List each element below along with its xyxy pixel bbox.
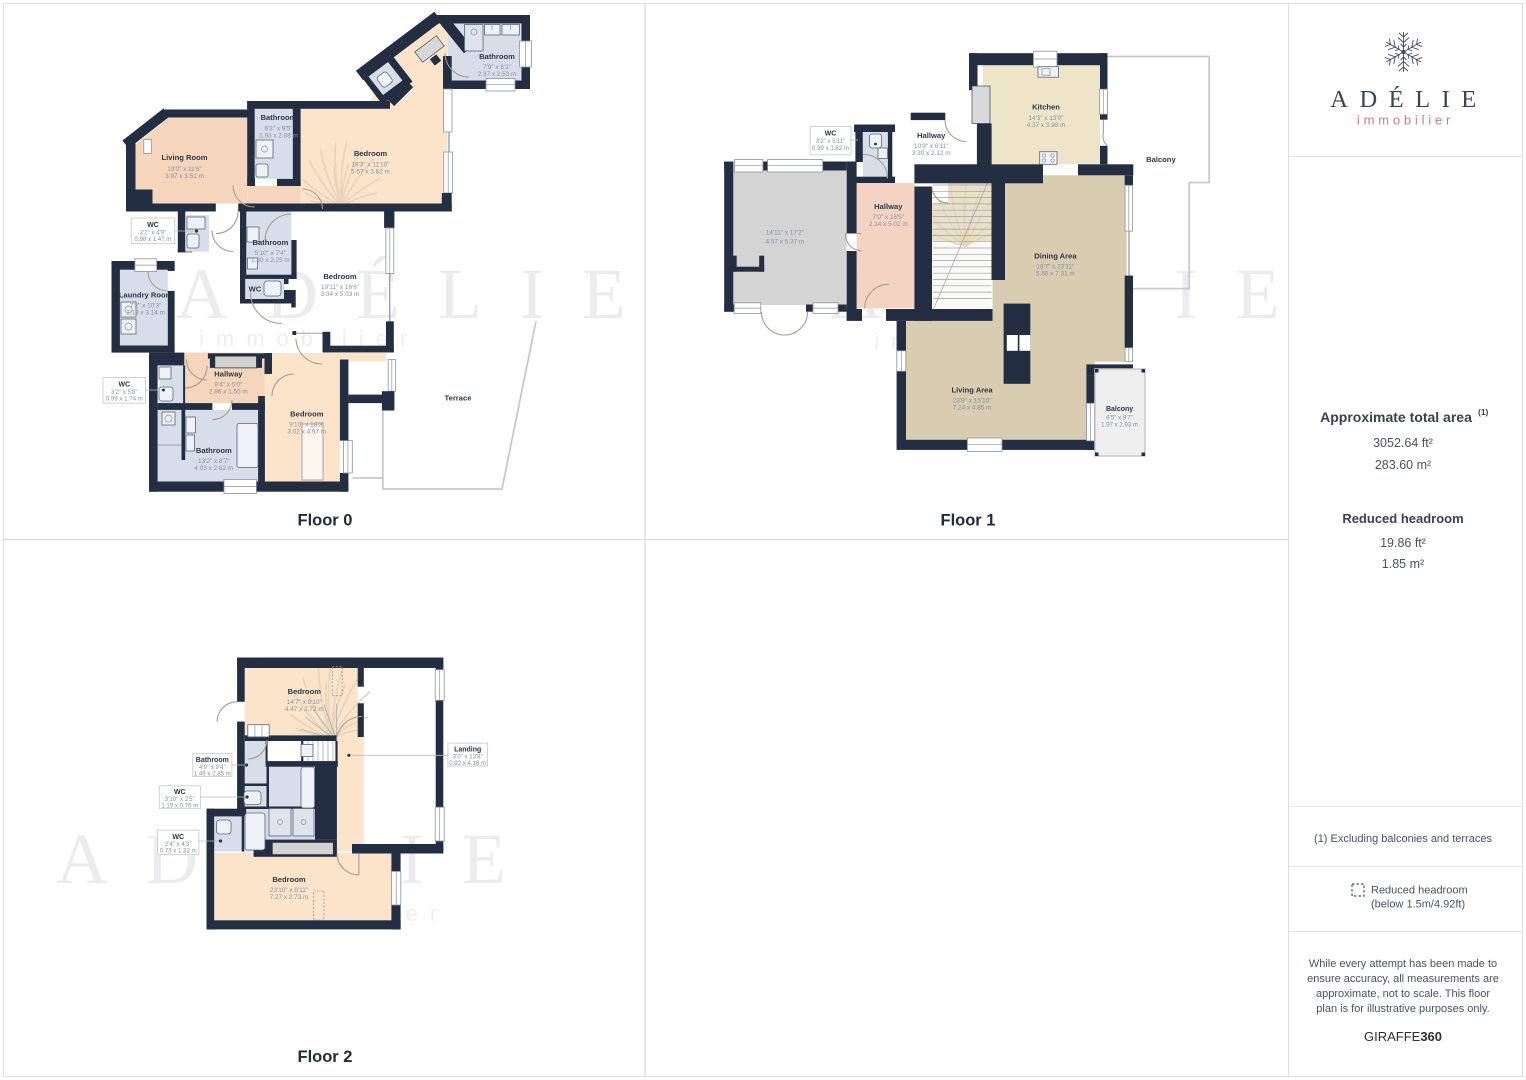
svg-text:Reduced headroom: Reduced headroom <box>1371 885 1468 897</box>
svg-text:Hallway: Hallway <box>214 370 243 379</box>
svg-text:WC: WC <box>147 222 159 229</box>
svg-text:2.19 x 3.14 m: 2.19 x 3.14 m <box>126 310 165 317</box>
svg-text:Bedroom: Bedroom <box>272 875 306 884</box>
svg-text:WC: WC <box>174 789 186 796</box>
svg-text:283.60 m²: 283.60 m² <box>1375 458 1431 472</box>
svg-text:Bedroom: Bedroom <box>323 272 357 281</box>
svg-text:Floor 0: Floor 0 <box>297 512 352 530</box>
svg-text:0.99 x 1.82 m: 0.99 x 1.82 m <box>812 145 849 152</box>
svg-text:WC: WC <box>825 131 837 138</box>
svg-text:3.97 x 3.51 m: 3.97 x 3.51 m <box>165 173 204 180</box>
svg-text:ADÉLIE: ADÉLIE <box>1330 85 1487 113</box>
svg-text:Reduced headroom: Reduced headroom <box>1342 511 1463 526</box>
svg-text:immobilier: immobilier <box>1357 113 1454 128</box>
svg-text:1.85 m²: 1.85 m² <box>1382 557 1424 571</box>
svg-text:Landing: Landing <box>454 746 481 753</box>
svg-text:0.99 x 1.74 m: 0.99 x 1.74 m <box>106 396 143 403</box>
svg-text:14'7" x 8'10": 14'7" x 8'10" <box>287 699 322 706</box>
svg-text:1.93 x 2.88 m: 1.93 x 2.88 m <box>259 133 298 140</box>
svg-text:3052.64 ft²: 3052.64 ft² <box>1373 436 1433 450</box>
svg-text:WC: WC <box>118 382 130 389</box>
svg-text:4.03 x 2.62 m: 4.03 x 2.62 m <box>194 465 233 472</box>
svg-text:Bathroom: Bathroom <box>252 238 288 247</box>
svg-text:4.57 x 5.37 m: 4.57 x 5.37 m <box>766 239 805 246</box>
svg-text:1.46 x 2.85 m: 1.46 x 2.85 m <box>194 771 231 778</box>
svg-text:Bedroom: Bedroom <box>354 149 388 158</box>
svg-text:Balcony: Balcony <box>1146 155 1176 164</box>
svg-text:3.30 x 2.12 m: 3.30 x 2.12 m <box>912 150 951 157</box>
svg-text:13'2" x 8'7": 13'2" x 8'7" <box>198 458 230 465</box>
svg-text:(below 1.5m/4.92ft): (below 1.5m/4.92ft) <box>1371 899 1465 911</box>
svg-text:3.34 x 5.03 m: 3.34 x 5.03 m <box>321 291 360 298</box>
svg-text:Terrace: Terrace <box>445 394 472 403</box>
svg-text:3.02 x 4.97 m: 3.02 x 4.97 m <box>287 429 326 436</box>
svg-text:ensure accuracy, all measureme: ensure accuracy, all measurements are <box>1307 973 1499 985</box>
svg-text:Balcony: Balcony <box>1106 406 1133 413</box>
svg-text:Laundry Room: Laundry Room <box>119 291 173 300</box>
svg-text:While every attempt has been m: While every attempt has been made to <box>1309 958 1497 970</box>
svg-text:Bedroom: Bedroom <box>290 410 324 419</box>
svg-text:3'2" x 5'11": 3'2" x 5'11" <box>816 138 846 145</box>
svg-text:Dining Area: Dining Area <box>1034 252 1077 261</box>
svg-text:Bathroom: Bathroom <box>196 757 229 764</box>
svg-text:5.68 x 7.31 m: 5.68 x 7.31 m <box>1036 271 1075 278</box>
svg-text:Hallway: Hallway <box>917 131 946 140</box>
svg-text:5'10" x 7'4": 5'10" x 7'4" <box>255 250 287 257</box>
svg-text:Floor 2: Floor 2 <box>297 1048 352 1066</box>
svg-text:Bedroom: Bedroom <box>288 687 322 696</box>
svg-text:14'11" x 17'2": 14'11" x 17'2" <box>766 230 804 237</box>
svg-text:(1) Excluding balconies and te: (1) Excluding balconies and terraces <box>1314 833 1492 845</box>
svg-text:WC: WC <box>172 834 184 841</box>
svg-text:0.98 x 1.47 m: 0.98 x 1.47 m <box>134 236 171 243</box>
svg-text:23'10" x 8'11": 23'10" x 8'11" <box>270 887 308 894</box>
svg-text:1.19 x 0.76 m: 1.19 x 0.76 m <box>161 803 198 810</box>
svg-text:10'9" x 6'11": 10'9" x 6'11" <box>914 143 949 150</box>
svg-text:7'0" x 16'5": 7'0" x 16'5" <box>873 214 905 221</box>
svg-text:19.86 ft²: 19.86 ft² <box>1380 536 1426 550</box>
svg-text:1.80 x 2.25 m: 1.80 x 2.25 m <box>251 257 290 264</box>
svg-text:5.57 x 3.62 m: 5.57 x 3.62 m <box>351 169 390 176</box>
svg-text:0.92 x 4.18 m: 0.92 x 4.18 m <box>449 760 486 767</box>
svg-text:9'10" x 16'3": 9'10" x 16'3" <box>289 422 324 429</box>
svg-text:6'5" x 9'7": 6'5" x 9'7" <box>1106 415 1133 422</box>
svg-text:14'3" x 13'0": 14'3" x 13'0" <box>1028 115 1063 122</box>
svg-text:WC: WC <box>249 285 262 294</box>
svg-text:2.86 x 1.55 m: 2.86 x 1.55 m <box>209 389 248 396</box>
svg-text:plan is for illustrative purpo: plan is for illustrative purposes only. <box>1316 1003 1489 1015</box>
svg-text:7'9" x 8'3": 7'9" x 8'3" <box>483 64 511 71</box>
svg-text:18'7" x 23'11": 18'7" x 23'11" <box>1036 264 1074 271</box>
svg-text:9'4" x 5'0": 9'4" x 5'0" <box>214 382 242 389</box>
svg-text:7.27 x 2.73 m: 7.27 x 2.73 m <box>270 894 309 901</box>
svg-text:23'8" x 15'10": 23'8" x 15'10" <box>953 398 992 405</box>
svg-text:Approximate total area: Approximate total area <box>1320 409 1472 425</box>
svg-text:6'3" x 9'5": 6'3" x 9'5" <box>265 126 293 133</box>
svg-text:1.97 x 2.93 m: 1.97 x 2.93 m <box>1101 422 1138 429</box>
svg-text:Living Room: Living Room <box>162 153 208 162</box>
svg-text:13'0" x 11'6": 13'0" x 11'6" <box>167 166 202 173</box>
svg-text:Hallway: Hallway <box>874 202 903 211</box>
svg-text:GIRAFFE360: GIRAFFE360 <box>1364 1029 1442 1044</box>
svg-text:7.24 x 4.85 m: 7.24 x 4.85 m <box>953 405 992 412</box>
svg-text:(1): (1) <box>1478 407 1489 417</box>
svg-text:Bathroom: Bathroom <box>196 446 232 455</box>
svg-text:10'11" x 16'6": 10'11" x 16'6" <box>321 284 359 291</box>
svg-text:Kitchen: Kitchen <box>1032 103 1060 112</box>
svg-text:4.37 x 3.98 m: 4.37 x 3.98 m <box>1027 122 1066 129</box>
svg-text:0.73 x 1.32 m: 0.73 x 1.32 m <box>160 848 197 855</box>
svg-text:2.37 x 2.53 m: 2.37 x 2.53 m <box>478 71 517 78</box>
svg-text:7'2" x 10'3": 7'2" x 10'3" <box>130 303 162 310</box>
svg-text:18'3" x 11'10": 18'3" x 11'10" <box>351 162 389 169</box>
svg-text:Bathroom: Bathroom <box>261 113 297 122</box>
svg-text:approximate, not to scale. Thi: approximate, not to scale. This floor <box>1316 988 1490 1000</box>
svg-text:2.14 x 5.02 m: 2.14 x 5.02 m <box>869 221 908 228</box>
svg-text:Living Area: Living Area <box>952 386 994 395</box>
svg-text:Floor 1: Floor 1 <box>940 512 995 530</box>
svg-text:4.47 x 2.72 m: 4.47 x 2.72 m <box>285 706 324 713</box>
svg-text:Bathroom: Bathroom <box>479 52 515 61</box>
